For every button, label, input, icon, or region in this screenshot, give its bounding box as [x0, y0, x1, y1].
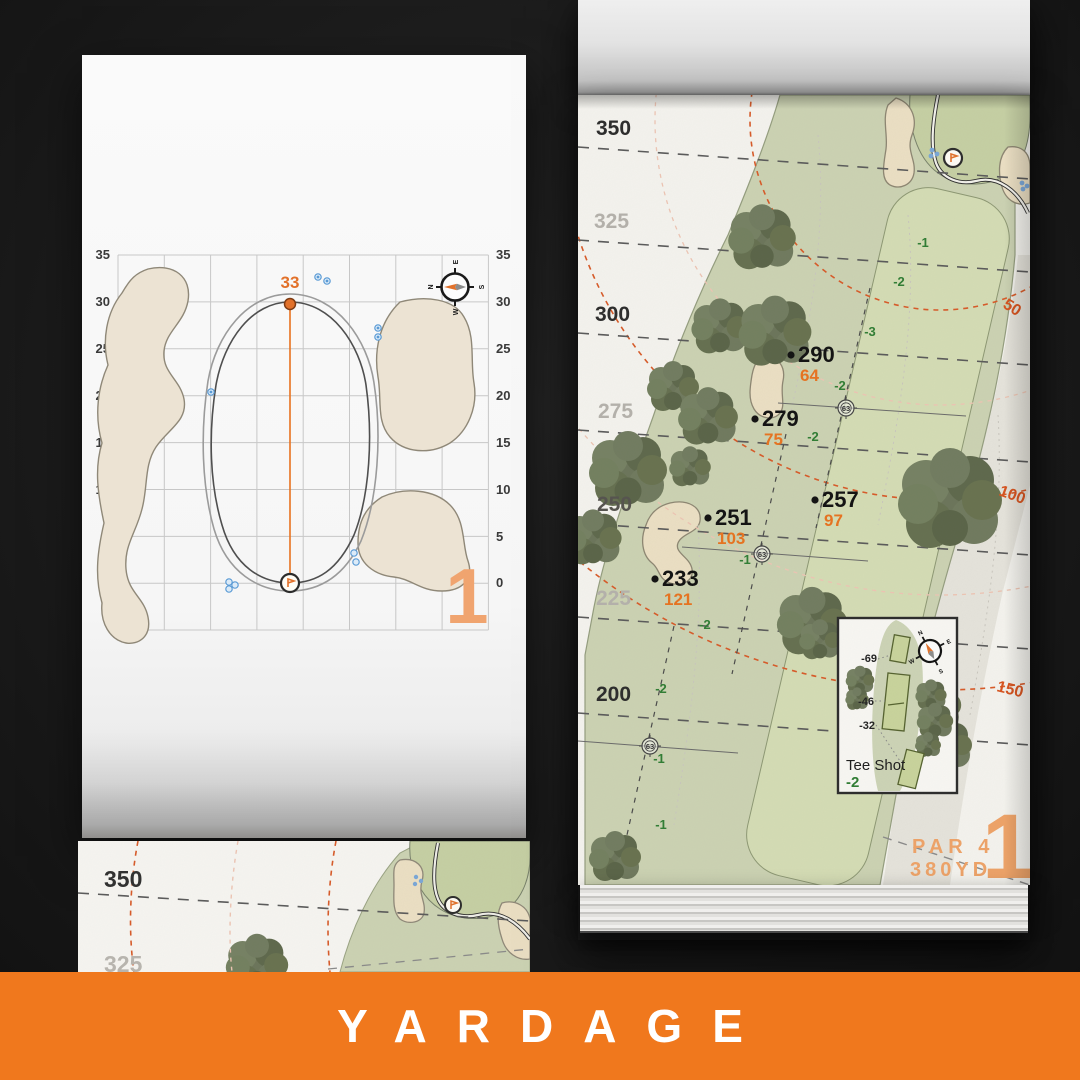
svg-text:0: 0 [496, 575, 503, 590]
axis-labels-right: 35 30 25 20 15 10 5 0 [496, 247, 510, 590]
svg-text:10: 10 [496, 482, 510, 497]
left-booklet-preview-page: 350 325 [78, 841, 530, 972]
svg-text:N: N [428, 284, 435, 289]
pin-front-dot [285, 299, 296, 310]
svg-text:25: 25 [496, 341, 510, 356]
hole-number: 1 [445, 552, 488, 640]
paper-texture [78, 841, 530, 972]
flipped-page-back [578, 0, 1030, 95]
banner-label: YARDAGE [307, 999, 773, 1053]
paper-texture [578, 95, 1030, 885]
svg-text:E: E [453, 259, 460, 264]
svg-text:5: 5 [496, 529, 503, 544]
svg-text:30: 30 [496, 294, 510, 309]
svg-text:15: 15 [496, 435, 510, 450]
title-banner: YARDAGE [0, 972, 1080, 1080]
svg-text:30: 30 [96, 294, 110, 309]
right-booklet: 63 63 63 [578, 0, 1030, 940]
hole-map: 63 63 63 [578, 95, 1030, 885]
svg-text:20: 20 [496, 388, 510, 403]
green-diagram: 35 30 25 20 15 10 5 0 35 30 25 20 15 10 … [82, 55, 526, 838]
left-booklet-green-page: 35 30 25 20 15 10 5 0 35 30 25 20 15 10 … [82, 55, 526, 838]
page-stack-edge [580, 885, 1028, 933]
preview-map: 350 325 [78, 841, 530, 972]
svg-text:W: W [453, 308, 460, 315]
flag-marker [281, 574, 299, 592]
pin-distance-label: 33 [281, 273, 300, 292]
svg-text:35: 35 [96, 247, 110, 262]
svg-text:S: S [479, 284, 486, 289]
hole-map-page: 63 63 63 [578, 95, 1030, 885]
svg-text:35: 35 [496, 247, 510, 262]
